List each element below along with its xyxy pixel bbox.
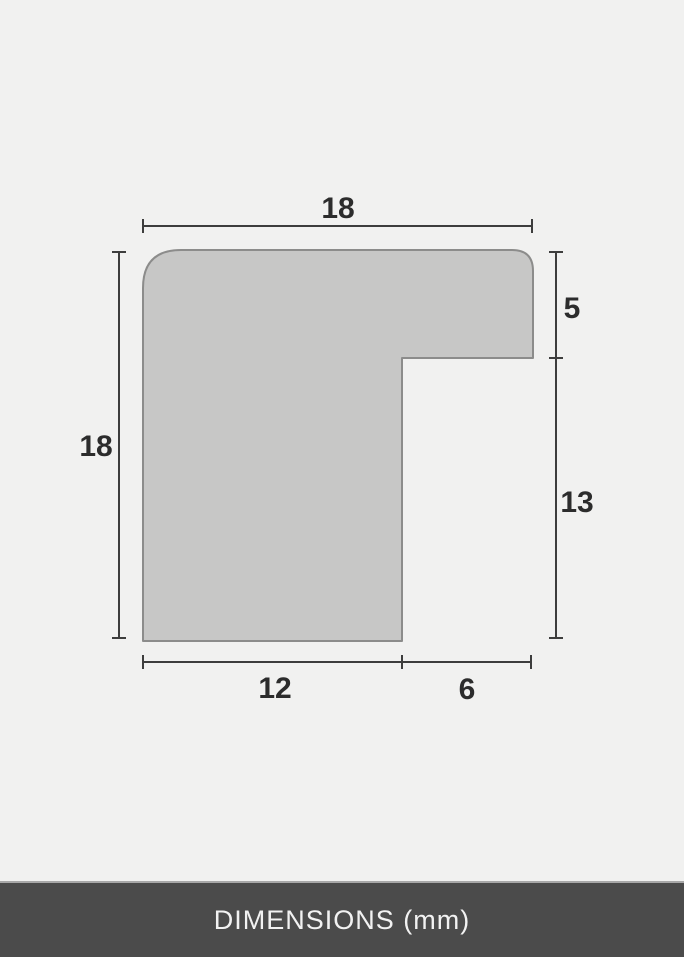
profile-diagram: 18 18 5 13 bbox=[0, 0, 684, 883]
dimension-left-height bbox=[112, 252, 126, 638]
footer-bar: DIMENSIONS (mm) bbox=[0, 881, 684, 957]
dimension-right-side bbox=[549, 252, 563, 638]
dimension-label-top-width: 18 bbox=[321, 192, 354, 225]
dimension-label-bottom-left: 12 bbox=[258, 672, 291, 705]
dimension-label-left-height: 18 bbox=[79, 430, 112, 463]
profile-shape bbox=[143, 250, 533, 641]
dimension-label-right-upper: 5 bbox=[564, 292, 581, 325]
dimension-bottom bbox=[143, 655, 531, 669]
dimension-label-bottom-right: 6 bbox=[459, 673, 476, 706]
dimension-label-right-lower: 13 bbox=[560, 486, 593, 519]
footer-title: DIMENSIONS (mm) bbox=[214, 905, 470, 936]
frame-profile-dimensions-page: 18 18 5 13 bbox=[0, 0, 684, 957]
diagram-canvas: 18 18 5 13 bbox=[0, 0, 684, 883]
